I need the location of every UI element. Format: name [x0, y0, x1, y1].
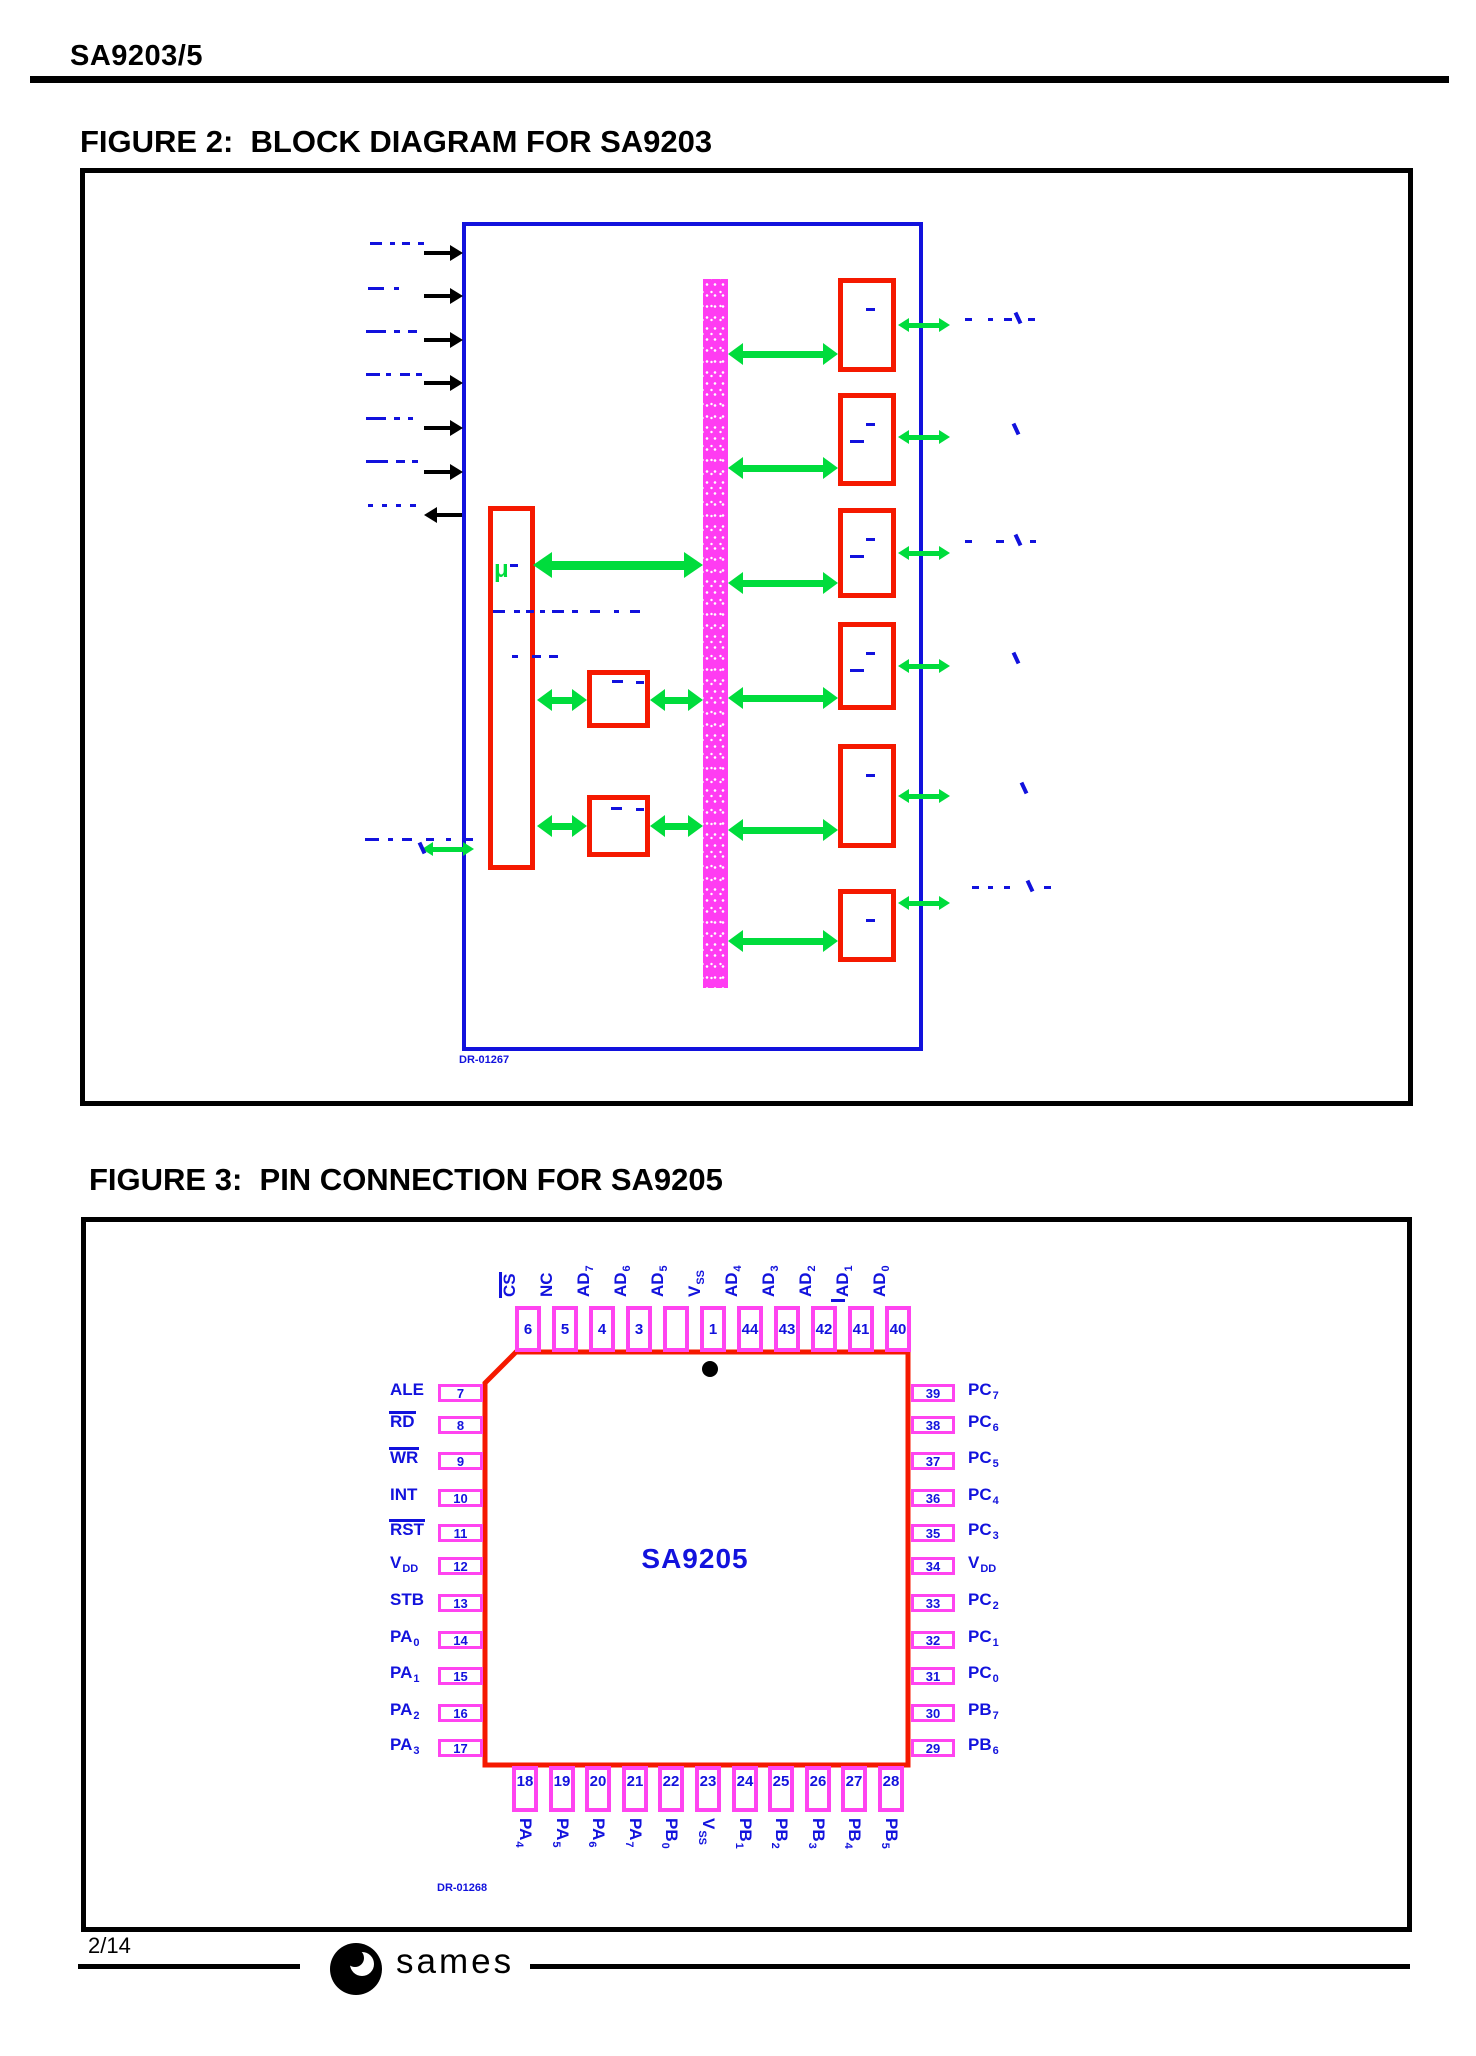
- pin-PA4-label: PA4: [516, 1818, 534, 1847]
- green-arrow-head-left: [650, 689, 665, 711]
- logo-moon-bite: [346, 1949, 364, 1967]
- pin-PB0-box: 22: [658, 1766, 684, 1812]
- pin-NC-box: 5: [552, 1306, 578, 1352]
- pin-PC5-label: PC5: [968, 1449, 999, 1473]
- degraded-text-dash: [418, 242, 424, 245]
- green-arrow-head-right: [823, 572, 838, 594]
- degraded-text-dash: [365, 838, 379, 841]
- degraded-text-dash: [965, 540, 972, 543]
- green-arrow-shaft: [740, 695, 826, 702]
- degraded-text-dash: [402, 242, 410, 245]
- green-arrow-head-left: [898, 659, 909, 673]
- green-arrow-head-right: [939, 659, 950, 673]
- degraded-text-dash: [850, 669, 864, 672]
- sub-block-upper: [587, 670, 650, 728]
- degraded-text-dash: [366, 373, 380, 376]
- input-arrow-shaft: [424, 294, 451, 298]
- pin-AD6-label: AD6: [612, 1265, 630, 1297]
- pin-PB3-box: 26: [805, 1766, 831, 1812]
- pin-PA1-box: 15: [438, 1667, 483, 1685]
- green-arrow-head-right: [939, 318, 950, 332]
- pin-AD4-label: AD4: [723, 1265, 741, 1297]
- chip-name: SA9205: [560, 1543, 830, 1575]
- green-arrow-shaft: [906, 435, 942, 440]
- pin-AD1-box: 41: [848, 1306, 874, 1352]
- degraded-text-dash: [366, 330, 386, 333]
- port-block-4: [838, 622, 896, 710]
- degraded-text-dash: [368, 287, 384, 290]
- green-arrow-head-right: [684, 552, 703, 578]
- green-arrow-shaft: [740, 351, 826, 358]
- green-arrow-head-left: [537, 689, 552, 711]
- degraded-text-dash: [493, 610, 505, 613]
- pin-PA3-label: PA3: [390, 1736, 419, 1760]
- footer-rule-left: [78, 1964, 300, 1969]
- green-arrow-head-right: [939, 896, 950, 910]
- green-arrow-shaft: [662, 823, 691, 830]
- sub-block-lower: [587, 795, 650, 857]
- green-arrow-shaft: [906, 551, 942, 556]
- datasheet-page: SA9203/5 FIGURE 2: BLOCK DIAGRAM FOR SA9…: [0, 0, 1476, 2056]
- pin-VSS-label: VSS: [699, 1818, 717, 1845]
- pin-ALE-label: ALE: [390, 1381, 424, 1400]
- green-arrow-shaft: [740, 938, 826, 945]
- pin-AD1-label: AD1: [834, 1265, 852, 1297]
- degraded-text-dash: [572, 610, 578, 613]
- figure2-title: FIGURE 2: BLOCK DIAGRAM FOR SA9203: [80, 124, 712, 160]
- figure2-drawing-ref: DR-01267: [459, 1054, 509, 1066]
- green-arrow-head-right: [572, 815, 587, 837]
- pin-PC6-box: 38: [911, 1416, 955, 1434]
- degraded-text-dash: [410, 504, 416, 507]
- degraded-text-dash: [866, 652, 875, 655]
- pin-PA2-label: PA2: [390, 1701, 419, 1725]
- pin-AD2-box: 42: [811, 1306, 837, 1352]
- input-arrow-head: [450, 464, 463, 480]
- pin-PC2-label: PC2: [968, 1591, 999, 1615]
- pin-PB2-box: 25: [768, 1766, 794, 1812]
- degraded-text-dash: [396, 504, 401, 507]
- microprocessor-label: μ: [494, 556, 509, 584]
- degraded-text-dash: [394, 417, 400, 420]
- green-arrow-head-left: [533, 552, 552, 578]
- degraded-text-dash: [1028, 318, 1035, 321]
- figure3-drawing-ref: DR-01268: [437, 1882, 487, 1894]
- input-arrow-shaft: [424, 381, 451, 385]
- output-arrow-shaft: [436, 513, 462, 517]
- degraded-text-dash: [446, 838, 451, 841]
- pin-PB4-box: 27: [841, 1766, 867, 1812]
- degraded-text-dash: [590, 610, 600, 613]
- pin-PA5-label: PA5: [553, 1818, 571, 1847]
- degraded-text-dash: [382, 504, 387, 507]
- degraded-text-dash: [850, 440, 864, 443]
- green-arrow-head-left: [537, 815, 552, 837]
- page-number: 2/14: [88, 1933, 131, 1959]
- pin-PB3-label: PB3: [809, 1818, 827, 1849]
- pin-PB2-label: PB2: [772, 1818, 790, 1849]
- pin-PB1-box: 24: [732, 1766, 758, 1812]
- degraded-text-dash: [402, 838, 412, 841]
- degraded-text-dash: [1004, 318, 1012, 321]
- port-block-2: [838, 393, 896, 486]
- brand-name: sames: [396, 1942, 514, 1982]
- pin-STB-box: 13: [438, 1594, 483, 1612]
- pin-PA7-label: PA7: [626, 1818, 644, 1847]
- degraded-text-dash: [426, 838, 434, 841]
- pin-PB7-label: PB7: [968, 1701, 999, 1725]
- degraded-text-dash: [636, 808, 644, 811]
- pin-VSS-box: 23: [695, 1766, 721, 1812]
- degraded-text-dash: [996, 540, 1004, 543]
- figure3-title: FIGURE 3: PIN CONNECTION FOR SA9205: [89, 1162, 723, 1198]
- input-arrow-shaft: [424, 470, 451, 474]
- green-arrow-shaft: [906, 323, 942, 328]
- pin-VDD-box: 34: [911, 1557, 955, 1575]
- input-arrow-head: [450, 288, 463, 304]
- green-arrow-head-left: [728, 930, 743, 952]
- green-arrow-head-right: [823, 457, 838, 479]
- pin-PB0-label: PB0: [662, 1818, 680, 1849]
- pin-AD6-box: 3: [626, 1306, 652, 1352]
- green-arrow-head-left: [728, 457, 743, 479]
- degraded-text-dash: [540, 610, 545, 613]
- pin-PC7-label: PC7: [968, 1381, 999, 1405]
- pin-AD7-box: 4: [589, 1306, 615, 1352]
- degraded-text-dash: [866, 538, 875, 541]
- pin-PC1-label: PC1: [968, 1628, 999, 1652]
- pin-INT-label: INT: [390, 1486, 417, 1505]
- pin-PC1-box: 32: [911, 1631, 955, 1649]
- degraded-text-dash: [416, 373, 422, 376]
- degraded-text-dash: [510, 564, 518, 567]
- green-arrow-head-right: [823, 687, 838, 709]
- green-arrow-shaft: [740, 580, 826, 587]
- degraded-text-dash: [532, 655, 541, 658]
- green-arrow-head-left: [728, 343, 743, 365]
- degraded-text-dash: [394, 287, 399, 290]
- green-arrow-head-left: [898, 546, 909, 560]
- green-arrow-head-left: [898, 430, 909, 444]
- part-number: SA9203/5: [70, 40, 203, 73]
- degraded-text-dash: [396, 460, 405, 463]
- degraded-text-dash: [866, 774, 875, 777]
- pin-PB1-label: PB1: [736, 1818, 754, 1849]
- pin-PA6-label: PA6: [589, 1818, 607, 1847]
- pin-CS-label: CS: [501, 1273, 519, 1297]
- pin-PC4-box: 36: [911, 1489, 955, 1507]
- green-arrow-head-right: [939, 546, 950, 560]
- pin-PA5-box: 19: [549, 1766, 575, 1812]
- pin-PC4-label: PC4: [968, 1486, 999, 1510]
- degraded-text-dash: [388, 838, 393, 841]
- green-arrow-head-left: [650, 815, 665, 837]
- pin-PB6-label: PB6: [968, 1736, 999, 1760]
- sames-logo: [328, 1941, 384, 1997]
- green-arrow-shaft: [549, 561, 687, 570]
- pin-AD3-label: AD3: [760, 1265, 778, 1297]
- degraded-text-dash: [1030, 540, 1036, 543]
- pin-PC3-box: 35: [911, 1524, 955, 1542]
- green-arrow-head-right: [688, 689, 703, 711]
- pin-VDD-box: 12: [438, 1557, 483, 1575]
- green-arrow-head-right: [939, 789, 950, 803]
- degraded-text-dash: [549, 655, 558, 658]
- pin-PA1-label: PA1: [390, 1664, 419, 1688]
- degraded-text-dash: [1004, 886, 1010, 889]
- degraded-text-dash: [366, 417, 386, 420]
- pin-WR-label: WR: [390, 1449, 418, 1468]
- input-arrow-head: [450, 375, 463, 391]
- degraded-text-dash: [636, 681, 644, 684]
- degraded-text-dash: [366, 460, 388, 463]
- degraded-text-dash: [526, 610, 534, 613]
- degraded-text-dash: [1044, 886, 1051, 889]
- port-block-1: [838, 278, 896, 372]
- green-arrow-head-left: [898, 789, 909, 803]
- degraded-text-dash: [400, 373, 410, 376]
- pin-PA0-box: 14: [438, 1631, 483, 1649]
- degraded-text-dash: [390, 242, 395, 245]
- pin-AD2-label: AD2: [797, 1265, 815, 1297]
- pin-NC-label: NC: [538, 1272, 556, 1297]
- pin-VDD-label: VDD: [968, 1554, 996, 1578]
- pin-PA7-box: 21: [622, 1766, 648, 1812]
- green-arrow-head-left: [728, 819, 743, 841]
- green-arrow-head-left: [728, 687, 743, 709]
- green-arrow-head-right: [572, 689, 587, 711]
- green-arrow-head-right: [823, 930, 838, 952]
- input-arrow-head: [450, 245, 463, 261]
- input-arrow-head: [450, 332, 463, 348]
- pin-VDD-label: VDD: [390, 1554, 418, 1578]
- input-arrow-shaft: [424, 251, 451, 255]
- pin-PA3-box: 17: [438, 1739, 483, 1757]
- pin-PC0-box: 31: [911, 1667, 955, 1685]
- green-arrow-shaft: [740, 827, 826, 834]
- green-arrow-shaft: [662, 697, 691, 704]
- degraded-text-dash: [611, 807, 622, 810]
- degraded-text-dash: [850, 555, 864, 558]
- degraded-text-dash: [972, 886, 979, 889]
- pin-CS-box: 6: [515, 1306, 541, 1352]
- pin-PB6-box: 29: [911, 1739, 955, 1757]
- pin-PC2-box: 33: [911, 1594, 955, 1612]
- green-arrow-head-left: [898, 318, 909, 332]
- green-arrow-head-right: [939, 430, 950, 444]
- degraded-text-dash: [614, 610, 619, 613]
- input-arrow-shaft: [424, 426, 451, 430]
- pin-PA6-box: 20: [585, 1766, 611, 1812]
- degraded-text-dash: [552, 610, 564, 613]
- pin-AD3-box: 43: [774, 1306, 800, 1352]
- degraded-text-dash: [408, 417, 413, 420]
- degraded-text-dash: [866, 919, 875, 922]
- green-arrow-shaft: [906, 664, 942, 669]
- pin-PA2-box: 16: [438, 1704, 483, 1722]
- pin-AD4-box: 44: [737, 1306, 763, 1352]
- degraded-text-dash: [368, 504, 373, 507]
- input-arrow-shaft: [424, 338, 451, 342]
- figure2-data-bus: [703, 279, 728, 988]
- pin-PB4-label: PB4: [845, 1818, 863, 1849]
- pin-PA4-box: 18: [512, 1766, 538, 1812]
- pin-PB5-box: 28: [878, 1766, 904, 1812]
- port-block-5: [838, 744, 896, 848]
- degraded-text-dash: [831, 1299, 845, 1302]
- pin1-indicator-dot: [702, 1361, 718, 1377]
- input-arrow-head: [450, 420, 463, 436]
- pin-ALE-box: 7: [438, 1384, 483, 1402]
- pin-RST-box: 11: [438, 1524, 483, 1542]
- pin-RD-label: RD: [390, 1413, 415, 1432]
- degraded-text-dash: [370, 242, 382, 245]
- green-arrow-head-right: [823, 343, 838, 365]
- degraded-text-dash: [630, 610, 640, 613]
- green-arrow-shaft: [430, 847, 466, 852]
- pin-AD5-label: AD5: [649, 1265, 667, 1297]
- pin-PB7-box: 30: [911, 1704, 955, 1722]
- green-arrow-shaft: [906, 794, 942, 799]
- degraded-text-dash: [394, 330, 400, 333]
- pin-RD-box: 8: [438, 1416, 483, 1434]
- degraded-text-dash: [464, 838, 473, 841]
- pin-AD5-box: [663, 1306, 689, 1352]
- green-arrow-shaft: [906, 901, 942, 906]
- degraded-text-dash: [408, 330, 417, 333]
- footer-rule-right: [530, 1964, 1410, 1969]
- pin-PA0-label: PA0: [390, 1628, 419, 1652]
- green-arrow-head-right: [463, 842, 474, 856]
- pin-VSS-box: 1: [700, 1306, 726, 1352]
- header-rule: [30, 76, 1449, 83]
- green-arrow-head-right: [688, 815, 703, 837]
- degraded-text-dash: [514, 610, 520, 613]
- green-arrow-head-left: [898, 896, 909, 910]
- pin-STB-label: STB: [390, 1591, 424, 1610]
- pin-PC0-label: PC0: [968, 1664, 999, 1688]
- degraded-text-dash: [612, 680, 623, 683]
- pin-RST-label: RST: [390, 1521, 424, 1540]
- pin-PC5-box: 37: [911, 1452, 955, 1470]
- degraded-text-dash: [988, 318, 993, 321]
- green-arrow-shaft: [740, 465, 826, 472]
- pin-PC6-label: PC6: [968, 1413, 999, 1437]
- degraded-text-dash: [866, 308, 875, 311]
- pin-WR-box: 9: [438, 1452, 483, 1470]
- degraded-text-dash: [512, 655, 518, 658]
- pin-PC3-label: PC3: [968, 1521, 999, 1545]
- pin-AD7-label: AD7: [575, 1265, 593, 1297]
- green-arrow-head-right: [823, 819, 838, 841]
- port-block-3: [838, 508, 896, 598]
- pin-PB5-label: PB5: [882, 1818, 900, 1849]
- pin-AD0-box: 40: [885, 1306, 911, 1352]
- green-arrow-head-left: [728, 572, 743, 594]
- degraded-text-dash: [965, 318, 972, 321]
- degraded-text-dash: [412, 460, 418, 463]
- pin-PC7-box: 39: [911, 1384, 955, 1402]
- degraded-text-dash: [988, 886, 993, 889]
- degraded-text-dash: [866, 423, 875, 426]
- degraded-text-dash: [386, 373, 391, 376]
- pin-INT-box: 10: [438, 1489, 483, 1507]
- port-block-6: [838, 889, 896, 962]
- pin-VSS-label: VSS: [686, 1270, 704, 1297]
- pin-AD0-label: AD0: [871, 1265, 889, 1297]
